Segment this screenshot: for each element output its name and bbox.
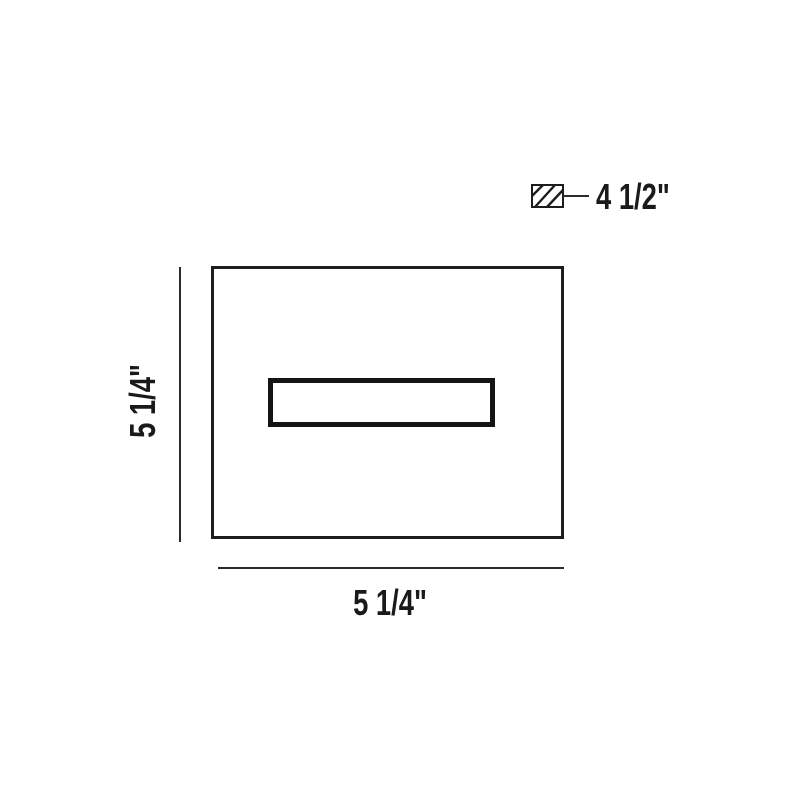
width-dimension-label: 5 1/4"	[353, 585, 427, 621]
depth-section-hatch-icon	[531, 184, 564, 208]
height-dimension-line	[179, 267, 181, 542]
height-dimension-label: 5 1/4"	[125, 364, 161, 438]
dimension-diagram-canvas: 5 1/4" 5 1/4" 4 1/2"	[0, 0, 800, 800]
lamp-opening-bar	[268, 378, 495, 427]
width-dimension-line	[218, 567, 564, 569]
depth-dimension-label: 4 1/2"	[596, 179, 670, 215]
depth-leader-line	[563, 195, 589, 197]
